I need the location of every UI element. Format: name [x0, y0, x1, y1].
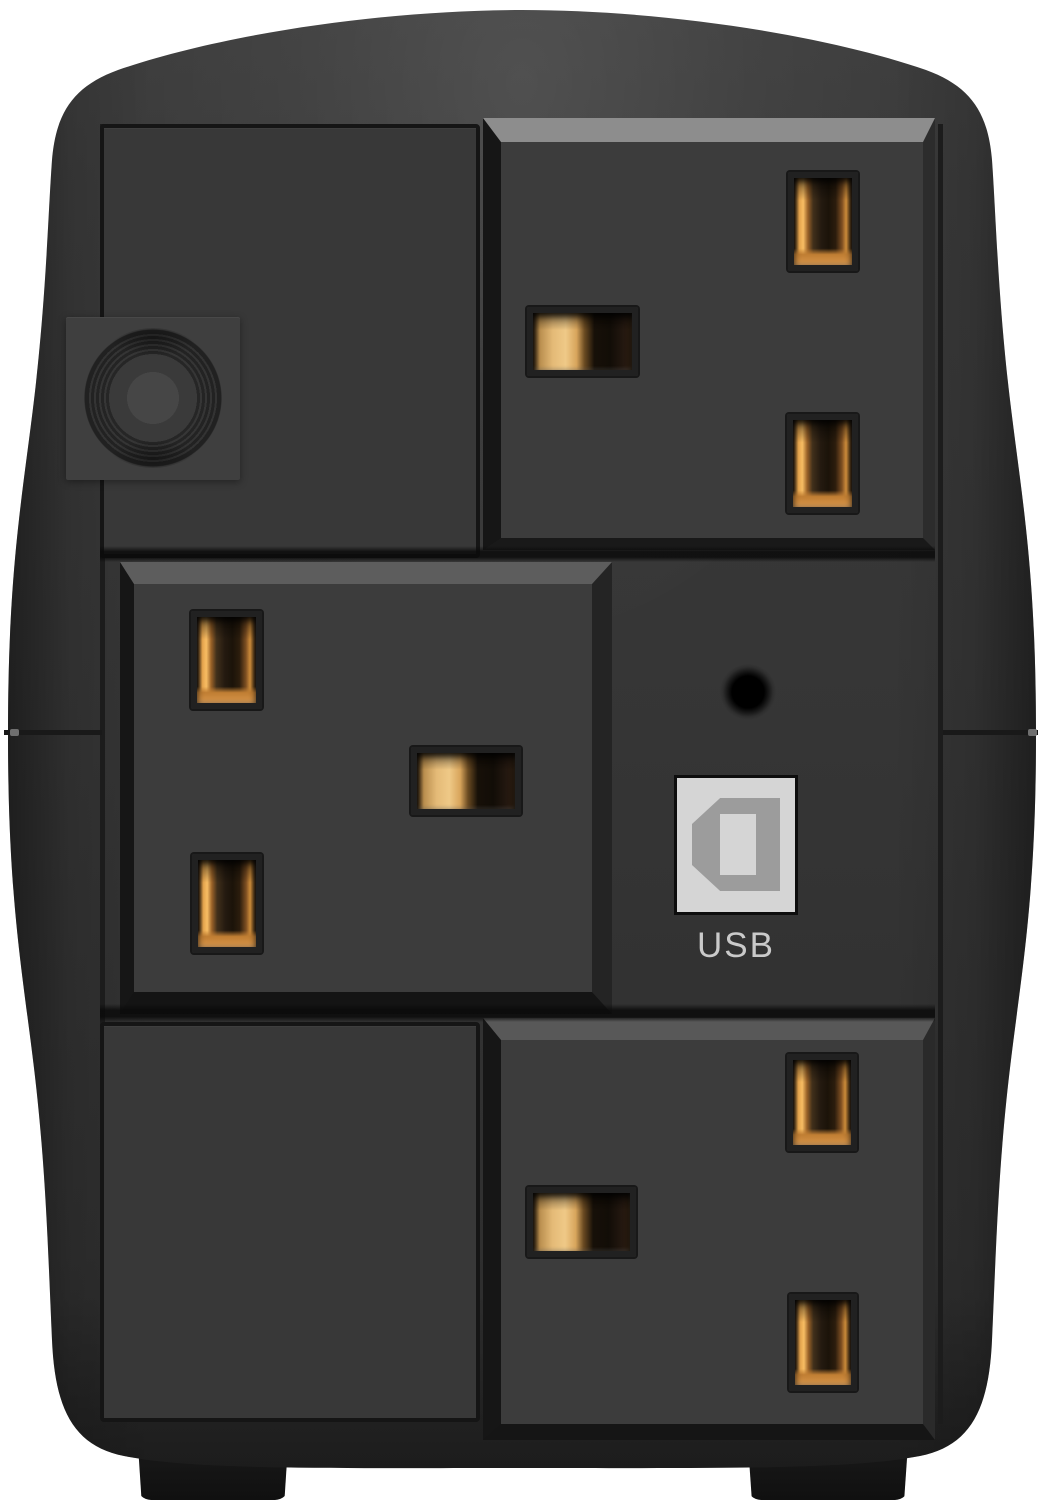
blank-panel-bottom-left	[100, 1022, 480, 1422]
circuit-breaker-button[interactable]	[83, 328, 223, 468]
neutral-pin-slot	[787, 414, 858, 513]
line-pin-slot	[788, 172, 858, 271]
right-case-seam	[943, 730, 1038, 735]
reset-pinhole-icon	[720, 664, 776, 720]
row-divider-lower	[100, 1004, 935, 1022]
earth-pin-slot	[527, 307, 638, 376]
usb-label: USB	[662, 926, 810, 966]
right-panel-groove	[938, 124, 943, 1424]
usb-port-tongue	[720, 814, 756, 875]
right-seam-notch	[1028, 729, 1037, 736]
neutral-pin-slot	[192, 854, 262, 953]
usb-type-b-port	[674, 775, 798, 915]
line-pin-slot	[787, 1054, 857, 1151]
usb-type-b-port-icon	[692, 798, 780, 891]
product-photo-ups-rear-panel: USB	[0, 0, 1044, 1500]
earth-pin-slot	[527, 1187, 636, 1257]
left-seam-notch	[10, 729, 19, 736]
neutral-pin-slot	[789, 1294, 857, 1391]
line-pin-slot	[191, 611, 262, 709]
earth-pin-slot	[411, 747, 521, 815]
circuit-breaker-plate	[66, 317, 240, 480]
row-divider-upper	[100, 546, 935, 562]
